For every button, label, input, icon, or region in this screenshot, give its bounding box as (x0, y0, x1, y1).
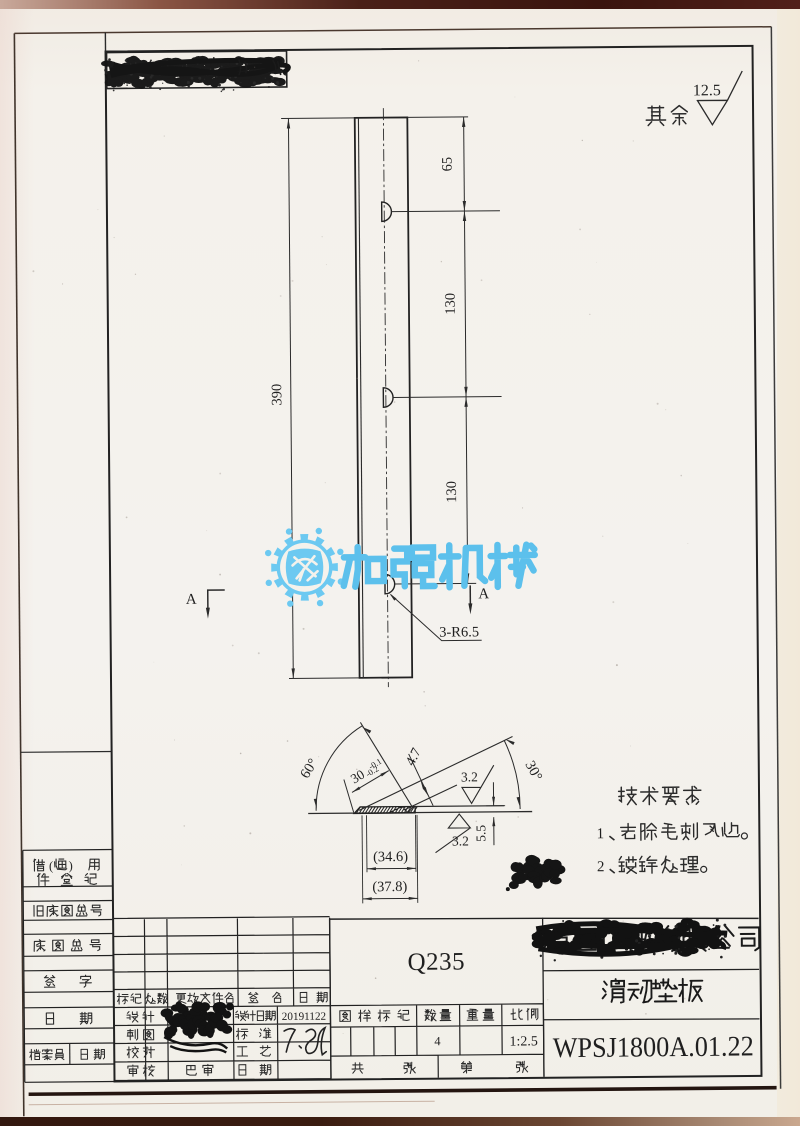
svg-text:30°: 30° (521, 758, 545, 784)
svg-text:1:2.5: 1:2.5 (509, 1034, 538, 1049)
svg-text:12.5: 12.5 (693, 82, 721, 99)
svg-text:130: 130 (443, 293, 459, 315)
svg-text:130: 130 (444, 481, 460, 503)
svg-text:WPSJ1800A.01.22: WPSJ1800A.01.22 (553, 1031, 754, 1064)
svg-text:390: 390 (269, 384, 285, 406)
svg-text:A: A (478, 586, 489, 602)
svg-text:): ) (68, 858, 72, 873)
svg-text:4.7: 4.7 (403, 746, 424, 768)
svg-text:65: 65 (440, 157, 456, 172)
svg-text:2: 2 (597, 859, 605, 875)
svg-text:3.2: 3.2 (452, 833, 469, 848)
svg-text:5.5: 5.5 (473, 825, 488, 842)
svg-text:(37.8): (37.8) (372, 879, 407, 895)
svg-text:Q235: Q235 (407, 948, 465, 976)
svg-text:A: A (186, 592, 197, 608)
svg-text:(34.6): (34.6) (373, 849, 408, 865)
svg-text:20191122: 20191122 (282, 1011, 326, 1023)
svg-text:(: ( (49, 858, 53, 873)
svg-text:4: 4 (434, 1034, 441, 1048)
svg-text:60°: 60° (297, 756, 321, 782)
svg-text:1: 1 (597, 826, 605, 842)
svg-text:3.2: 3.2 (461, 769, 478, 784)
svg-text:3-R6.5: 3-R6.5 (439, 624, 479, 640)
